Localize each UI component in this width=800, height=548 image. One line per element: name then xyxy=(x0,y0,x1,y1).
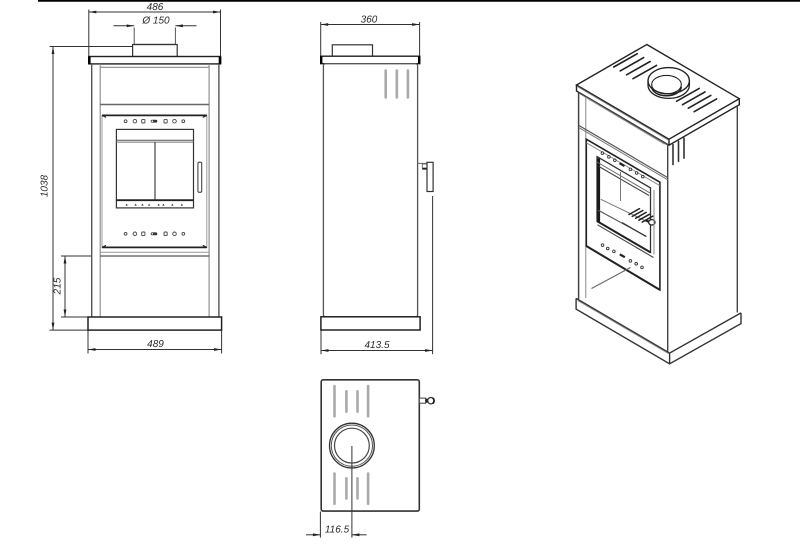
svg-text:1038: 1038 xyxy=(40,174,51,197)
svg-text:413.5: 413.5 xyxy=(364,340,389,351)
svg-text:489: 489 xyxy=(147,339,164,350)
svg-text:116.5: 116.5 xyxy=(325,524,350,535)
svg-text:486: 486 xyxy=(147,2,164,13)
svg-text:360: 360 xyxy=(361,14,378,25)
svg-text:Ø 150: Ø 150 xyxy=(141,16,170,27)
svg-text:215: 215 xyxy=(53,277,64,295)
